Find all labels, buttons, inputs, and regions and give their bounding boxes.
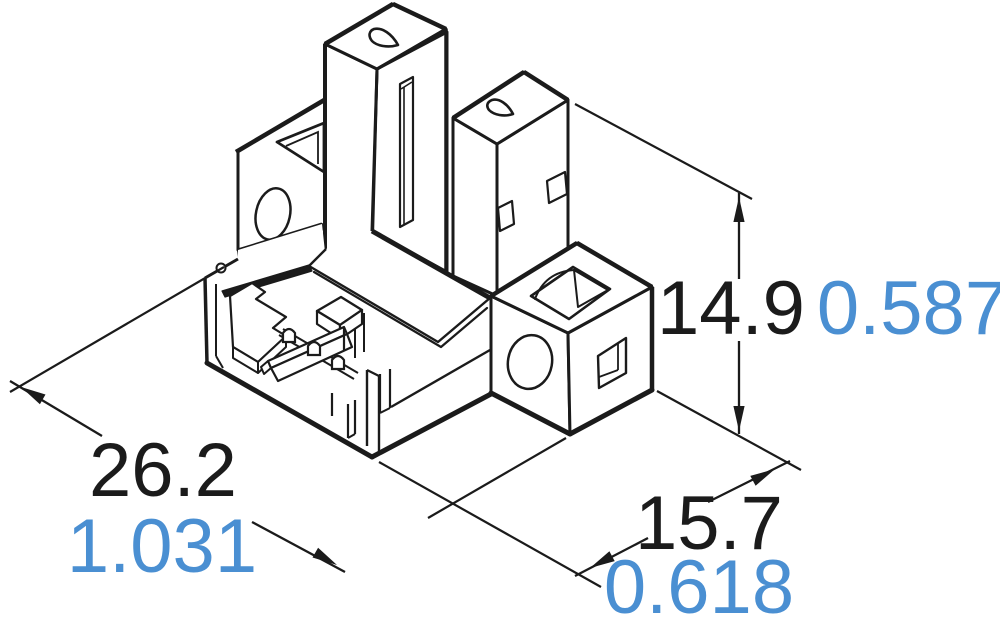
svg-text:14.9: 14.9 <box>657 266 805 351</box>
svg-text:0.587: 0.587 <box>817 266 1000 351</box>
svg-text:0.618: 0.618 <box>604 545 794 628</box>
svg-text:26.2: 26.2 <box>89 428 237 513</box>
svg-text:1.031: 1.031 <box>67 504 257 589</box>
